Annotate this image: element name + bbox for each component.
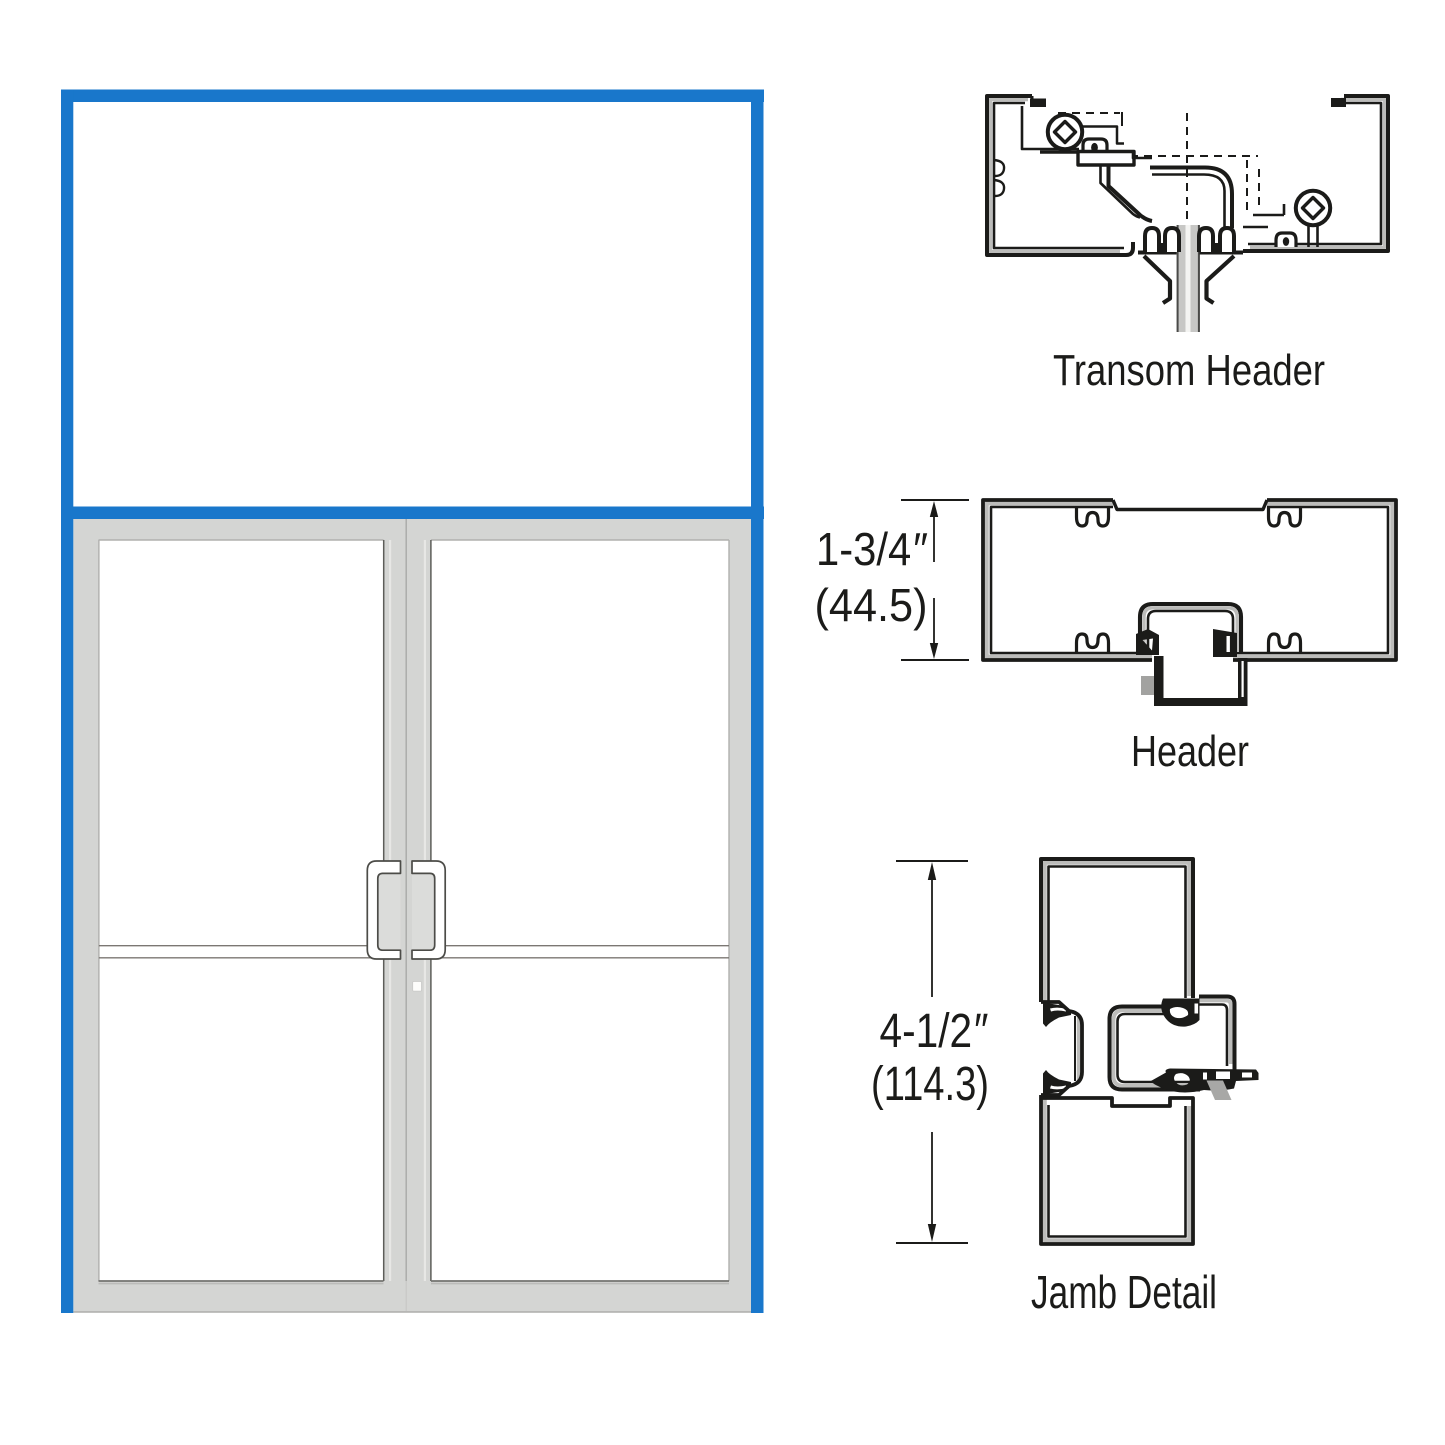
svg-text:(114.3): (114.3) — [871, 1058, 989, 1111]
svg-text:Transom Header: Transom Header — [1053, 346, 1325, 395]
svg-text:Jamb Detail: Jamb Detail — [1031, 1266, 1217, 1318]
svg-text:4-1/2″: 4-1/2″ — [880, 1005, 989, 1058]
svg-text:Header: Header — [1131, 727, 1249, 776]
svg-text:(44.5): (44.5) — [815, 579, 928, 631]
svg-text:1-3/4″: 1-3/4″ — [816, 523, 928, 575]
